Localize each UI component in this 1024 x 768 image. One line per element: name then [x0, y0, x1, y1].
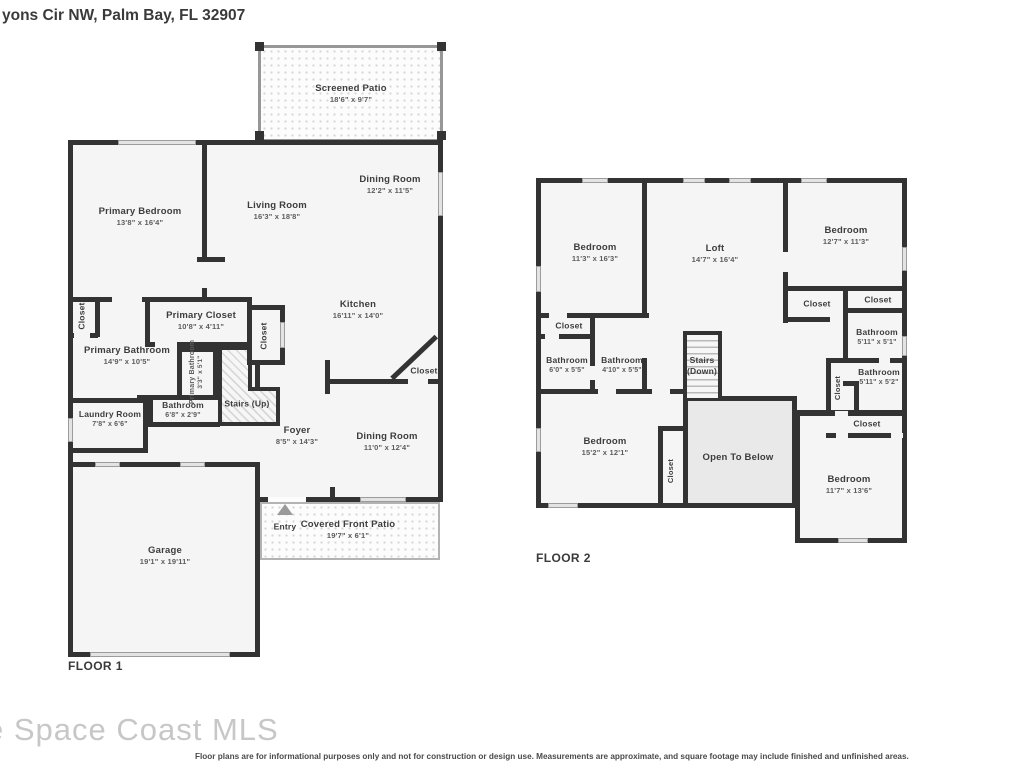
room-label-bathroom-e2: Bathroom 5'11" x 5'2" [858, 367, 900, 387]
room-label-dining-room-upper: Dining Room 12'2" x 11'5" [359, 174, 420, 196]
wall [330, 487, 335, 502]
wall [255, 42, 264, 51]
door-marker [180, 462, 205, 467]
room-label-stairs-up: Stairs (Up) [224, 398, 269, 409]
wall [437, 131, 446, 140]
room-label-dining-room-lower: Dining Room 11'0" x 12'4" [356, 431, 417, 453]
wall [846, 308, 907, 313]
wall [145, 302, 150, 347]
room-label-bathroom1: Bathroom 6'8" x 2'9" [162, 400, 204, 420]
room-label-primary-bathroom: Primary Bathroom 14'9" x 10'5" [84, 345, 170, 367]
door-opening [783, 252, 788, 272]
floor-plan-canvas: yons Cir NW, Palm Bay, FL 32907 e Space … [0, 0, 1024, 768]
room-label-closet-e-h: Closet [853, 418, 880, 429]
room-label-primary-closet: Primary Closet 10'8" x 4'11" [166, 310, 236, 332]
door-opening [891, 433, 903, 438]
wall [197, 257, 225, 262]
wall [437, 42, 446, 51]
window-marker [801, 178, 827, 183]
wall [95, 297, 100, 337]
door-opening [545, 334, 559, 339]
room-label-foyer: Foyer 8'5" x 14'3" [276, 425, 318, 447]
room-label-primary-bathroom-small: Primary Bathroom 3'3" x 5'1" [188, 340, 206, 404]
door-opening [549, 313, 567, 318]
garage-door-marker [90, 652, 230, 657]
window-marker [729, 178, 751, 183]
wall [68, 398, 143, 403]
room-label-entry: Entry [274, 521, 297, 532]
wall [218, 346, 252, 350]
disclaimer-text: Floor plans are for informational purpos… [195, 752, 909, 761]
window-marker [280, 322, 285, 348]
wall [325, 360, 330, 394]
room-label-covered-front-patio: Covered Front Patio 19'7" x 6'1" [301, 519, 396, 541]
room-label-bedroom-sw: Bedroom 15'2" x 12'1" [582, 436, 629, 458]
window-marker [838, 538, 868, 543]
room-label-bedroom-ne: Bedroom 12'7" x 11'3" [823, 225, 869, 247]
wall [642, 178, 647, 318]
room-label-bedroom-se: Bedroom 11'7" x 13'6" [826, 474, 872, 496]
door-opening [112, 297, 142, 302]
window-marker [902, 247, 907, 271]
window-marker [118, 140, 196, 145]
wall [590, 334, 595, 394]
window-marker [683, 178, 705, 183]
window-marker [360, 497, 406, 502]
door-opening [652, 389, 670, 394]
room-label-bathroom-e1: Bathroom 5'11" x 5'1" [856, 327, 898, 347]
wall [248, 346, 252, 391]
wall [218, 346, 222, 426]
window-marker [582, 178, 608, 183]
wall [783, 178, 788, 291]
floor1-label: FLOOR 1 [68, 659, 123, 673]
wall [148, 422, 220, 427]
wall [783, 317, 830, 322]
room-label-closet-sw-v: Closet [666, 459, 676, 483]
window-marker [548, 503, 578, 508]
door-opening [598, 389, 616, 394]
room-label-closet-hall: Closet [258, 322, 269, 349]
room-label-kitchen: Kitchen 16'11" x 14'0" [333, 299, 384, 321]
door-opening [74, 333, 90, 338]
room-label-closet-mid: Closet [803, 298, 830, 309]
address-title: yons Cir NW, Palm Bay, FL 32907 [2, 7, 245, 25]
mls-watermark: e Space Coast MLS [0, 712, 279, 748]
room-label-closet-nw: Closet [76, 302, 87, 329]
wall [826, 358, 831, 416]
room-label-screened-patio: Screened Patio 18'6" x 9'7" [315, 83, 386, 105]
window-marker [536, 266, 541, 292]
entry-arrow-icon [277, 504, 293, 515]
wall [68, 448, 148, 453]
room-label-bathroom-w1: Bathroom 6'0" x 5'5" [546, 355, 588, 375]
door-opening [835, 411, 848, 416]
room-label-bathroom-w2: Bathroom 4'10" x 5'5" [601, 355, 643, 375]
wall [255, 131, 264, 140]
wall [843, 286, 848, 363]
entry-opening [268, 497, 306, 502]
room-label-closet-e-v: Closet [833, 376, 843, 400]
wall [202, 140, 207, 262]
room-label-laundry: Laundry Room 7'8" x 6'6" [79, 409, 141, 429]
room-label-garage: Garage 19'1" x 19'11" [140, 545, 191, 567]
wall [330, 379, 408, 384]
floor2-label: FLOOR 2 [536, 551, 591, 565]
room-label-open-to-below: Open To Below [702, 452, 773, 464]
wall [276, 387, 280, 426]
room-label-stairs-down: Stairs (Down) [687, 355, 717, 377]
window-marker [438, 172, 443, 216]
wall [826, 358, 879, 363]
wall [177, 347, 182, 400]
wall [797, 411, 907, 416]
window-marker [68, 418, 73, 442]
wall [255, 360, 260, 390]
door-opening [590, 366, 595, 380]
room-label-bedroom-nw: Bedroom 11'3" x 16'3" [572, 242, 618, 264]
room-label-living-room: Living Room 16'3" x 18'8" [247, 200, 307, 222]
room-label-loft: Loft 14'7" x 16'4" [692, 243, 739, 265]
wall [143, 398, 148, 453]
room-label-closet-ne: Closet [864, 294, 891, 305]
window-marker [536, 428, 541, 452]
door-opening [836, 433, 848, 438]
wall [218, 422, 280, 426]
door-marker [95, 462, 120, 467]
room-label-closet-dining: Closet [410, 365, 437, 376]
room-label-primary-bedroom: Primary Bedroom 13'8" x 16'4" [99, 206, 182, 228]
window-marker [902, 336, 907, 356]
room-label-closet-w: Closet [555, 320, 582, 331]
wall [658, 426, 663, 508]
wall [428, 379, 443, 384]
wall [890, 358, 907, 363]
